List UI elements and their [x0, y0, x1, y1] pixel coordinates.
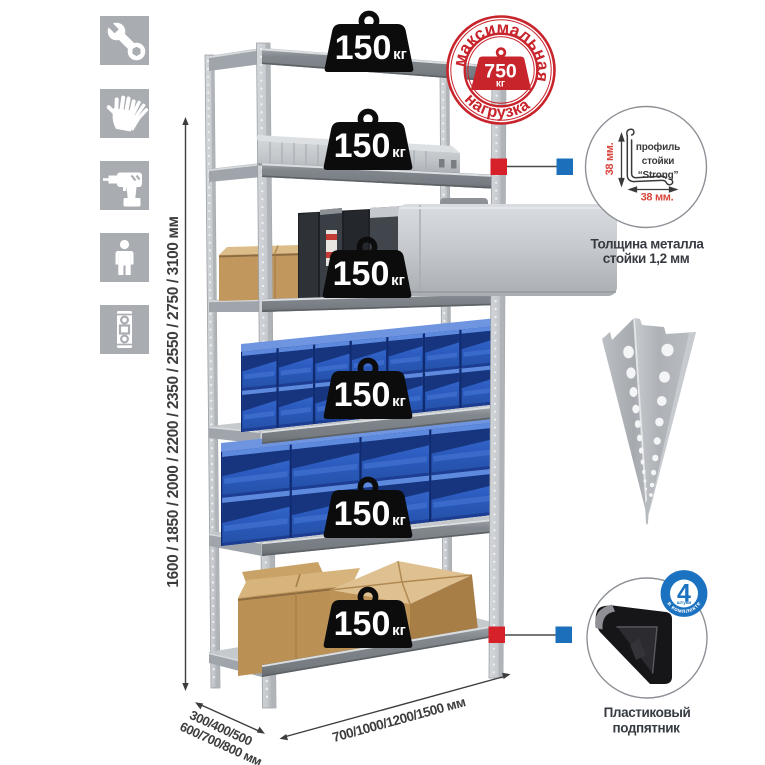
svg-text:стойки 1,2 мм: стойки 1,2 мм — [603, 251, 690, 266]
svg-text:кг: кг — [392, 144, 406, 161]
svg-text:подпятник: подпятник — [612, 721, 680, 736]
svg-text:150: 150 — [334, 127, 391, 165]
svg-text:кг: кг — [393, 46, 407, 63]
svg-text:150: 150 — [334, 605, 391, 643]
svg-text:кг: кг — [392, 622, 406, 639]
svg-text:150: 150 — [334, 495, 391, 533]
svg-text:1600 / 1850 / 2000 / 2200 / 23: 1600 / 1850 / 2000 / 2200 / 2350 / 2550 … — [165, 216, 182, 587]
svg-text:150: 150 — [334, 376, 391, 414]
svg-text:150: 150 — [335, 29, 392, 67]
svg-text:кг: кг — [391, 272, 405, 289]
svg-text:стойки: стойки — [642, 156, 675, 167]
svg-text:38 мм.: 38 мм. — [641, 192, 674, 204]
svg-text:Толщина металла: Толщина металла — [590, 237, 704, 252]
svg-text:штуки: штуки — [677, 601, 692, 606]
svg-text:Пластиковый: Пластиковый — [604, 705, 691, 720]
svg-text:кг: кг — [392, 512, 406, 529]
svg-text:профиль: профиль — [636, 141, 680, 153]
svg-text:“Strong”: “Strong” — [638, 170, 679, 181]
svg-text:38 мм.: 38 мм. — [604, 142, 616, 175]
svg-text:кг: кг — [496, 79, 505, 90]
svg-text:150: 150 — [333, 255, 390, 293]
svg-text:кг: кг — [392, 393, 406, 410]
